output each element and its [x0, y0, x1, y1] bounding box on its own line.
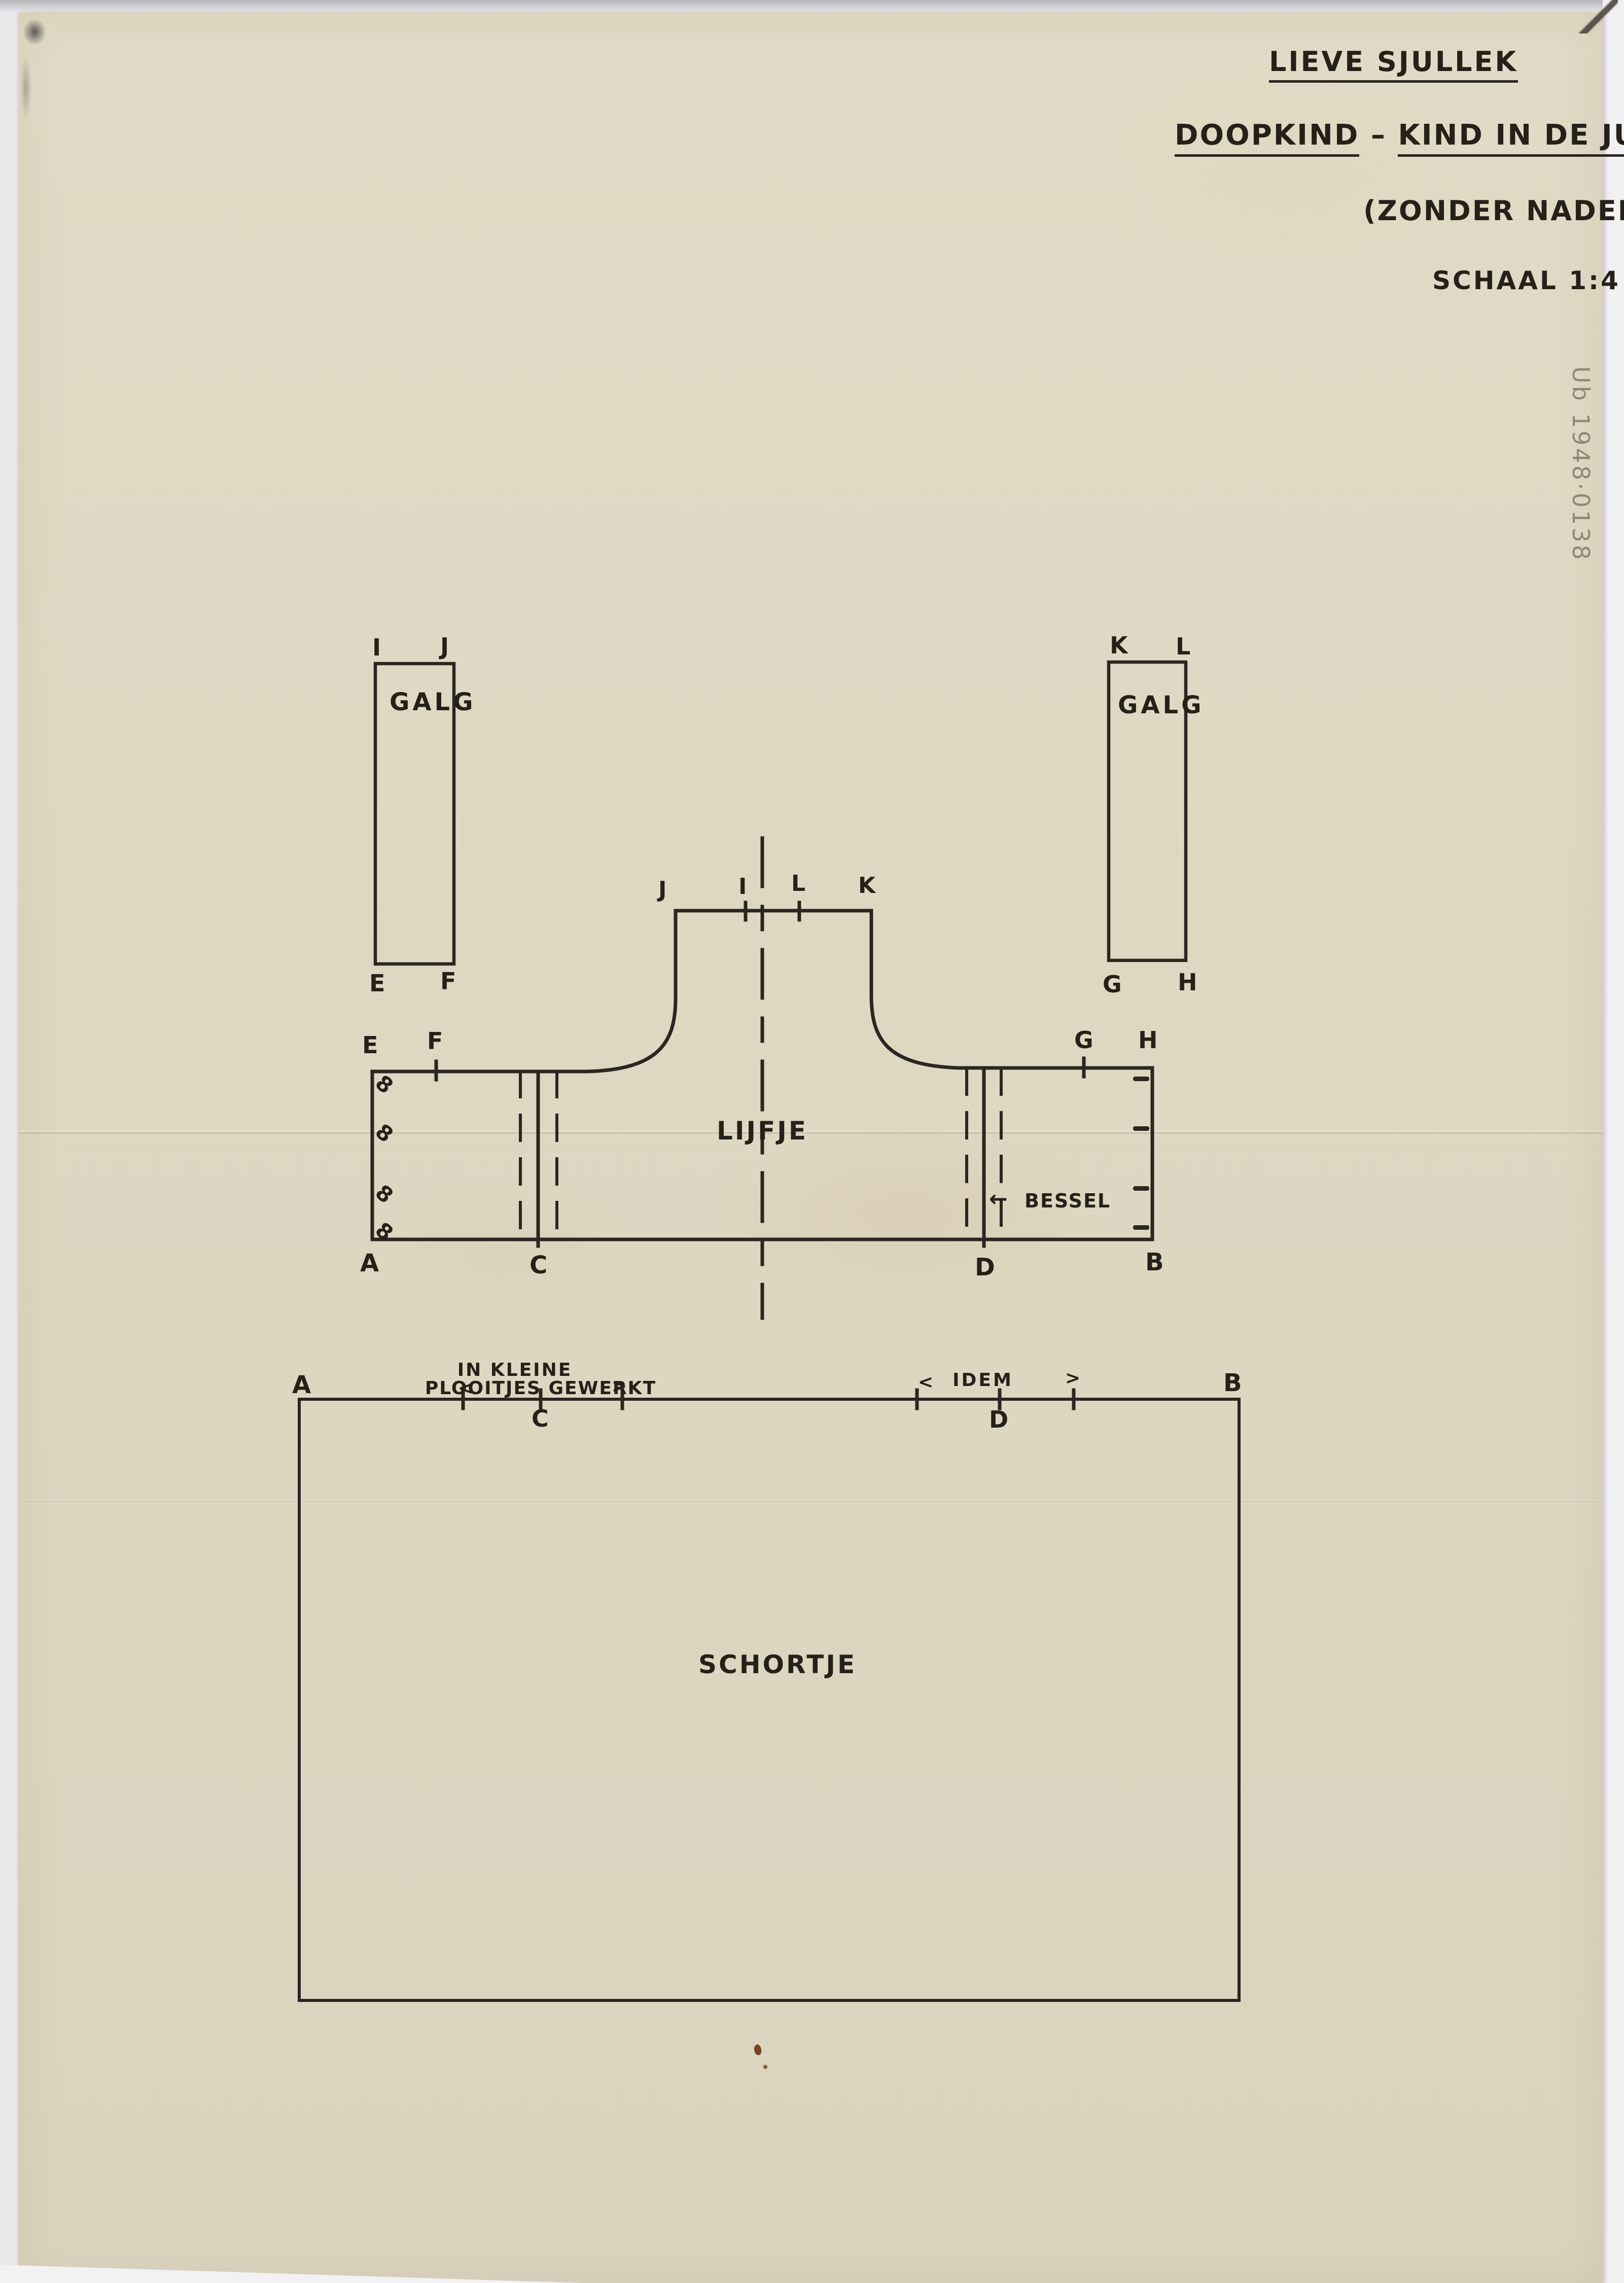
- buttonhole-3: 8: [371, 1180, 398, 1208]
- bessel-label: BESSEL: [1025, 1190, 1111, 1212]
- schortje-point-d: D: [989, 1406, 1008, 1433]
- lijfje-point-c: C: [529, 1251, 547, 1279]
- buttonhole-2: 8: [371, 1119, 398, 1147]
- buttonhole-4: 8: [371, 1217, 398, 1246]
- neck-label-i: I: [738, 874, 747, 900]
- button-3: [1133, 1186, 1149, 1191]
- button-marks: [1133, 1077, 1149, 1230]
- schortje-corner-a: A: [292, 1371, 311, 1399]
- galg-right-corner-h: H: [1178, 968, 1197, 996]
- button-1: [1133, 1077, 1149, 1081]
- galg-left-corner-e: E: [369, 970, 385, 997]
- buttonhole-1: 8: [371, 1070, 398, 1098]
- shoulder-label-f: F: [427, 1027, 443, 1055]
- galg-left-corner-j: J: [439, 633, 449, 660]
- schortje-outline: [299, 1399, 1239, 2000]
- galg-right-piece: K L G H GALG: [1103, 632, 1205, 998]
- lijfje-corner-a: A: [360, 1249, 379, 1277]
- button-4: [1133, 1225, 1149, 1230]
- galg-right-label: GALG: [1118, 691, 1205, 719]
- pleat-note-close-arrow: >: [612, 1376, 627, 1397]
- lijfje-label: LIJFJE: [717, 1116, 808, 1146]
- galg-left-label: GALG: [390, 688, 476, 716]
- lijfje-piece: J I L K E F G H 8 8 8 8: [360, 838, 1164, 1318]
- idem-label: IDEM: [952, 1370, 1013, 1391]
- shoulder-label-e: E: [362, 1031, 378, 1059]
- lijfje-corner-b: B: [1145, 1248, 1164, 1276]
- button-2: [1133, 1126, 1149, 1131]
- idem-open-arrow: <: [918, 1372, 933, 1393]
- galg-right-corner-g: G: [1103, 971, 1122, 998]
- scan-page: LIEVE SJULLEK DOOPKIND – KIND IN DE JURK…: [0, 0, 1624, 2283]
- idem-close-arrow: >: [1065, 1368, 1080, 1389]
- lijfje-point-d: D: [975, 1253, 995, 1282]
- schortje-point-c: C: [532, 1405, 549, 1432]
- schortje-label: SCHORTJE: [698, 1650, 857, 1679]
- pattern-drawing: I J E F GALG K L G H GALG J I L K: [0, 0, 1624, 2283]
- schortje-piece: A B C D IN KLEINE < PLOOITJES GEWERKT > …: [292, 1360, 1242, 2000]
- shoulder-label-h: H: [1138, 1026, 1158, 1054]
- neck-label-k: K: [858, 873, 876, 898]
- schortje-corner-b: B: [1223, 1369, 1242, 1397]
- neck-label-l: L: [791, 871, 805, 896]
- galg-left-corner-f: F: [440, 967, 456, 995]
- bessel-arrow: ←: [989, 1186, 1008, 1212]
- galg-right-corner-l: L: [1176, 633, 1190, 660]
- buttonhole-marks: 8 8 8 8: [371, 1070, 398, 1246]
- galg-left-piece: I J E F GALG: [369, 633, 476, 997]
- pleat-note-line1: IN KLEINE: [457, 1360, 573, 1380]
- galg-right-corner-k: K: [1110, 632, 1129, 659]
- shoulder-label-g: G: [1074, 1026, 1093, 1054]
- neck-label-j: J: [657, 877, 666, 903]
- galg-left-corner-i: I: [372, 634, 381, 661]
